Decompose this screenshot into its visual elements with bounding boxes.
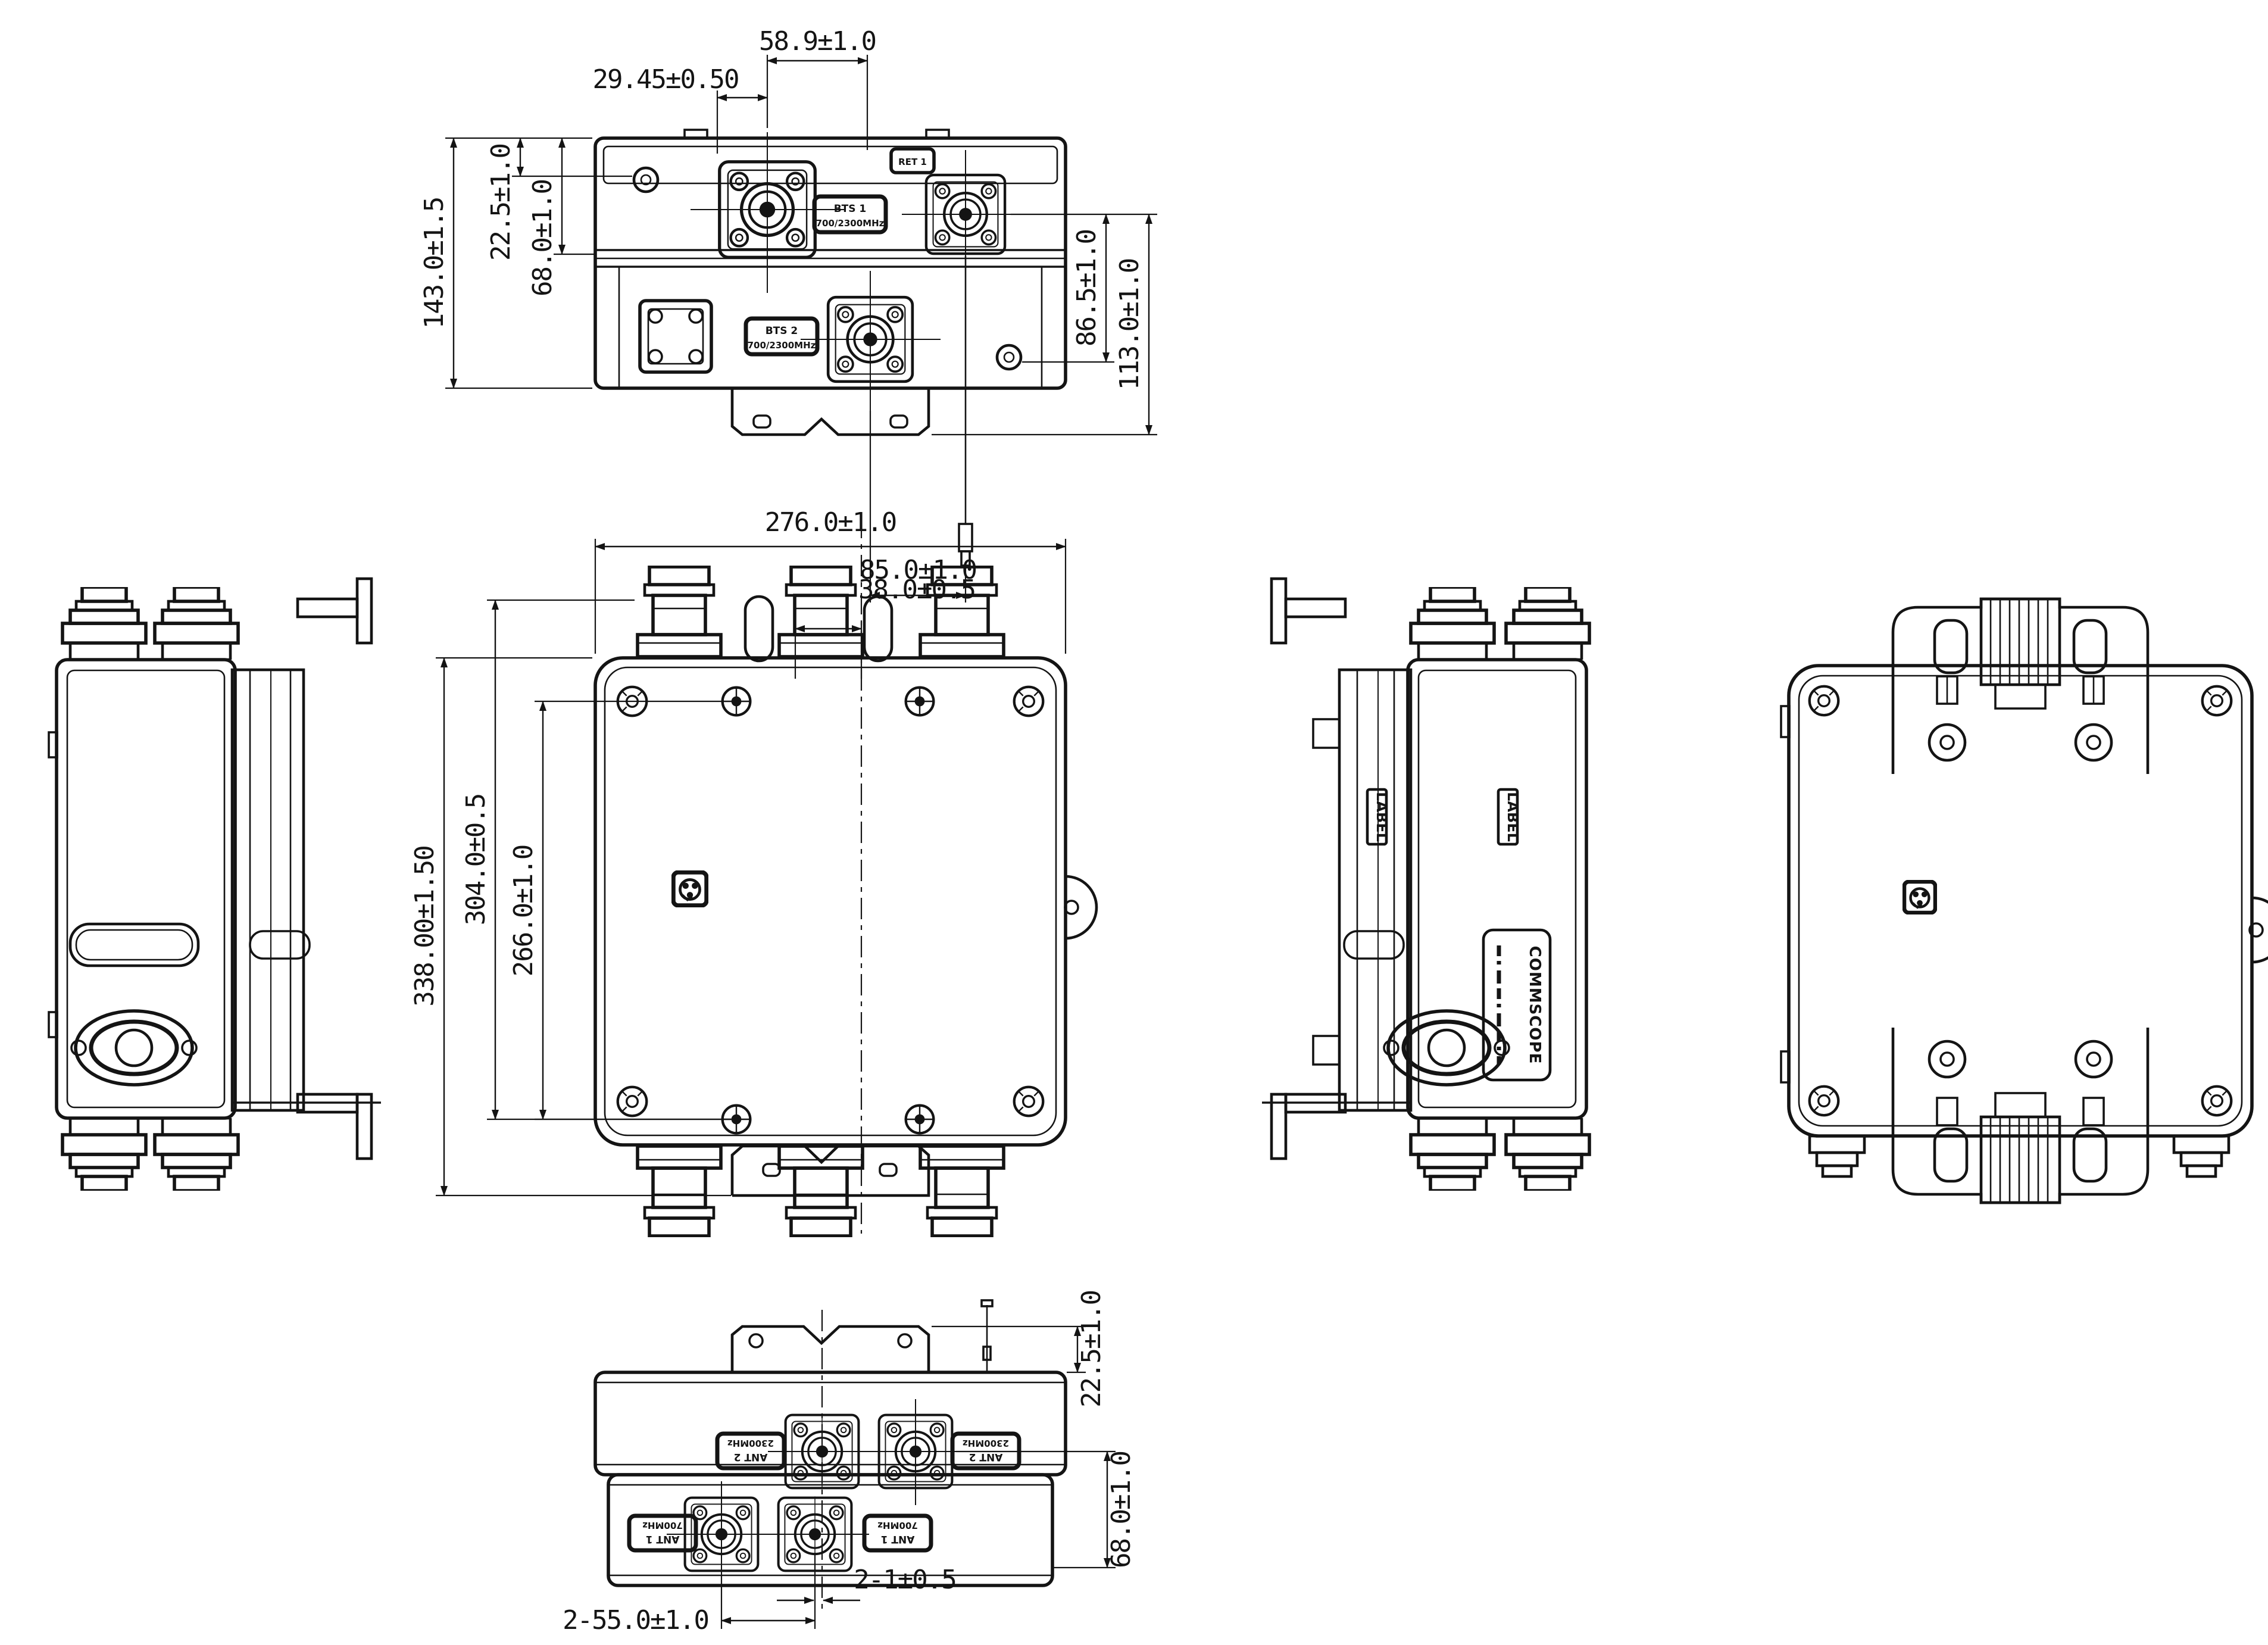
top-connector (1506, 587, 1589, 660)
port-label-freq: 2300MHz (963, 1438, 1009, 1449)
dim-bracket: 22.5±1.0 (1076, 1291, 1107, 1407)
bottom-connectors (638, 1146, 1004, 1236)
side-ear (1066, 876, 1096, 938)
dim-right-inner: 86.5±1.0 (1071, 230, 1102, 347)
port-label-text: BTS 1 (834, 203, 867, 215)
dim-step: 22.5±1.0 (486, 144, 516, 261)
front-view-dimensions: 276.0±1.0 38.0±0.5 338.00±1.50 304.0±0.5… (410, 507, 1066, 1195)
dim-right-outer: 113.0±1.0 (1114, 259, 1145, 390)
port-label-text: ANT 1 (881, 1533, 915, 1545)
bottom-view: ANT 2 2300MHz ANT 2 2300MHz ANT 1 700MHz… (563, 1291, 1136, 1635)
corner-screw (1810, 1087, 1839, 1116)
bottom-mount-bracket (1893, 1028, 2148, 1203)
top-connector (1411, 587, 1494, 660)
label-tag-text: LABEL (1504, 792, 1521, 842)
back-view (1781, 599, 2268, 1203)
port-label-freq: 700/2300MHz (816, 218, 885, 229)
right-side-view: LABEL LABEL COMMSCOPE (1262, 579, 1589, 1191)
mount-bracket (1262, 579, 1411, 1159)
corner-screw (1810, 686, 1839, 716)
dim-port-offset: 29.45±0.50 (593, 64, 739, 95)
dim-center-offset: 2-1±0.5 (854, 1565, 955, 1595)
port-label-text: RET 1 (898, 157, 927, 167)
port-label-text: BTS 2 (766, 325, 798, 337)
bottom-bracket-plate (732, 1146, 929, 1195)
bottom-connectors (63, 1118, 238, 1191)
label-tag-text: LABEL (1373, 792, 1390, 842)
left-side-view (49, 579, 381, 1191)
dim-width: 276.0±1.0 (765, 507, 896, 538)
certification-icon (1904, 882, 1935, 913)
brand-text: COMMSCOPE (1526, 946, 1544, 1065)
port-label-bts1: BTS 1 700/2300MHz (814, 196, 886, 232)
top-connector (155, 587, 238, 660)
port-label-freq: 700MHz (877, 1520, 918, 1531)
top-connector (779, 567, 863, 657)
dim-height-screws: 266.0±1.0 (508, 845, 539, 976)
port-label-bts2: BTS 2 700/2300MHz (746, 319, 817, 354)
port-label-freq: 2300MHz (727, 1438, 774, 1449)
certification-icon (673, 872, 707, 906)
label-tag: LABEL (1367, 789, 1390, 844)
port-label-ant1: ANT 1 700MHz (864, 1516, 931, 1550)
port-label-freq: 700MHz (642, 1520, 683, 1531)
bracket-plate (732, 1326, 929, 1372)
cover-screw (905, 1104, 935, 1134)
bracket-slot (864, 597, 892, 661)
dim-conn-depth: 68.0±1.0 (527, 180, 558, 296)
cover-screw (905, 686, 935, 716)
port-label-text: ANT 2 (969, 1451, 1003, 1463)
top-connector (638, 567, 721, 657)
handle-slot (250, 931, 310, 959)
commscope-label: COMMSCOPE (1483, 930, 1550, 1080)
port-label-text: ANT 1 (646, 1533, 680, 1545)
mount-bracket (232, 579, 381, 1159)
dim-port-offset: 38.0±0.5 (858, 575, 975, 605)
dim-height-overall: 338.00±1.50 (410, 846, 440, 1006)
top-connector (63, 587, 146, 660)
cover-screw (721, 686, 751, 716)
side-ear (2252, 898, 2268, 962)
corner-screw (618, 1087, 647, 1116)
bolt-head (997, 345, 1021, 369)
port-label-ret: RET 1 (891, 149, 934, 173)
dim-height-mount: 304.0±0.5 (461, 794, 491, 925)
corner-screw (2203, 686, 2232, 716)
round-flange (71, 1011, 196, 1085)
label-tag: LABEL (1498, 789, 1521, 844)
corner-screw (1014, 1087, 1044, 1116)
bolt-head (634, 168, 658, 192)
port-label-freq: 700/2300MHz (748, 340, 816, 351)
bracket-slot (745, 597, 773, 661)
corner-screw (1014, 687, 1044, 716)
front-view: 276.0±1.0 38.0±0.5 338.00±1.50 304.0±0.5… (410, 507, 1096, 1236)
round-flange (1384, 1011, 1509, 1085)
port-label-text: ANT 2 (734, 1451, 768, 1463)
top-mount-bracket (1893, 599, 2148, 774)
dim-port-pitch: 2-55.0±1.0 (563, 1605, 708, 1635)
dim-port-pitch: 58.9±1.0 (759, 26, 876, 57)
corner-screw (2203, 1087, 2232, 1116)
drawing-svg: BTS 1 700/2300MHz RET 1 BTS 2 700/2300MH… (0, 0, 2268, 1645)
bottom-connectors (1411, 1118, 1589, 1191)
ret-interface-flange (640, 301, 711, 372)
dim-depth: 143.0±1.5 (419, 198, 449, 329)
dim-conn-depth: 68.0±1.0 (1106, 1452, 1136, 1568)
engineering-drawing-sheet: BTS 1 700/2300MHz RET 1 BTS 2 700/2300MH… (0, 0, 2268, 1645)
